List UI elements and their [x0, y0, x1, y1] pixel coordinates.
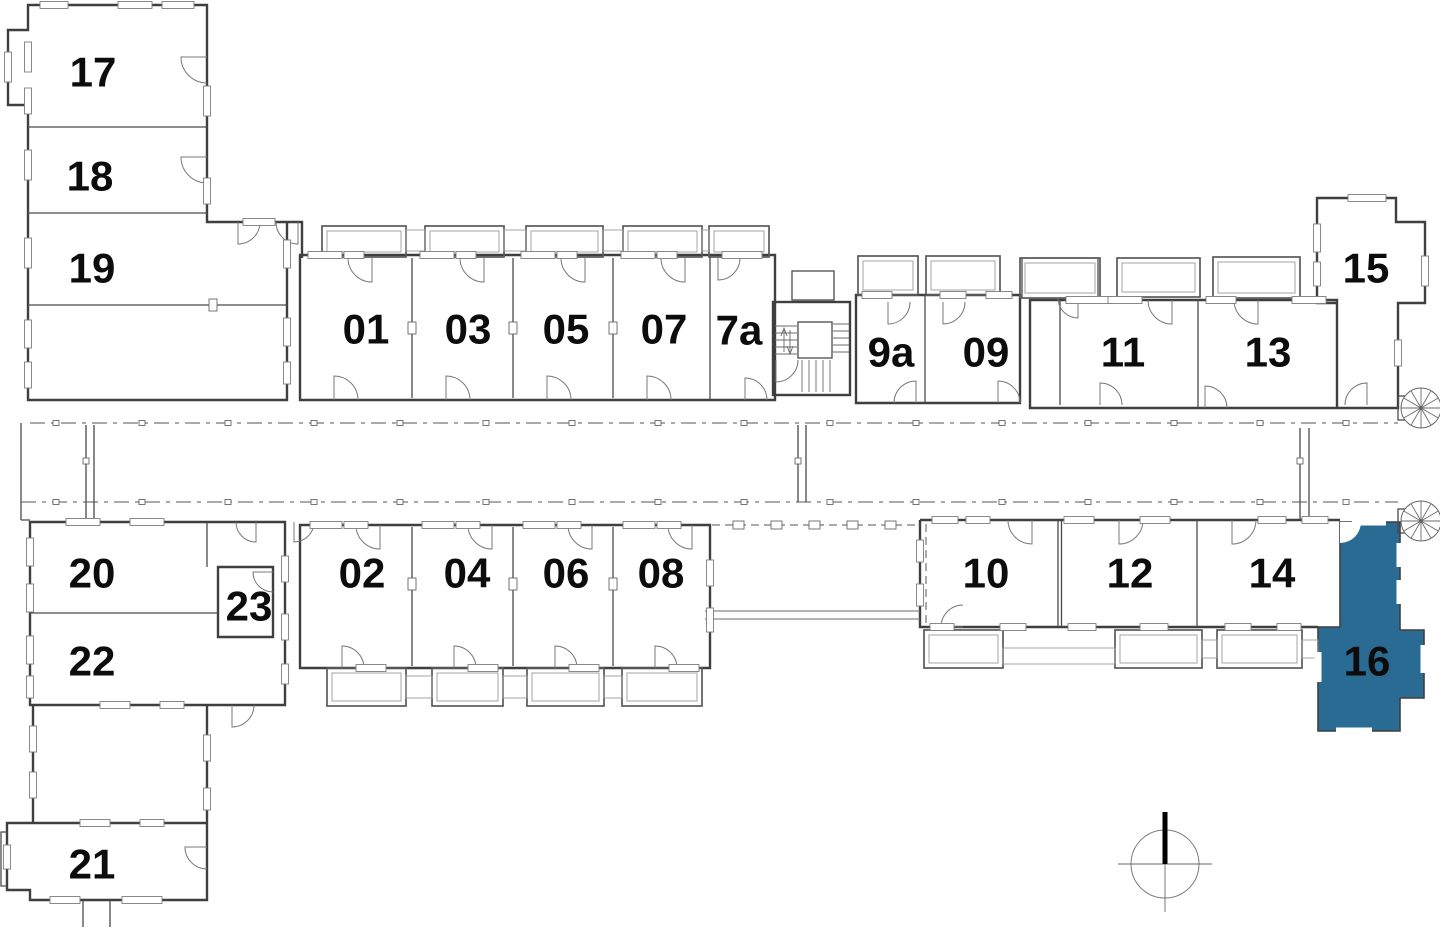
gallery-post [1171, 421, 1177, 426]
balcony [432, 668, 503, 706]
window-icon [25, 320, 32, 348]
gallery-post [1257, 421, 1263, 426]
balcony-inner-rail [531, 231, 598, 252]
balcony-link [604, 676, 622, 698]
unit-08-area[interactable] [613, 525, 710, 668]
gallery-post [53, 421, 59, 426]
compass-north-needle [1163, 812, 1168, 864]
balcony-inner-rail [332, 673, 401, 701]
gallery-post [311, 500, 317, 505]
gallery-post [827, 500, 833, 505]
gallery-post [483, 421, 489, 426]
unit-label-10: 10 [963, 550, 1010, 597]
door-swing-icon [776, 360, 798, 382]
balcony [622, 668, 702, 706]
unit-label-15: 15 [1343, 245, 1390, 292]
unit-22-area[interactable] [30, 613, 207, 705]
window-icon [308, 252, 342, 259]
unit-label-7a: 7a [716, 307, 763, 354]
gallery-post [913, 500, 919, 505]
balcony-inner-rail [532, 673, 599, 701]
unit-label-21: 21 [69, 841, 116, 888]
balcony [327, 668, 406, 706]
unit-20-area[interactable] [30, 522, 207, 613]
gallery-post [827, 421, 833, 426]
balcony [924, 630, 1003, 668]
balcony [858, 256, 918, 295]
gallery-post [569, 421, 575, 426]
staircase-icon [773, 271, 850, 395]
balcony-inner-rail [714, 231, 764, 252]
spiral-stair-center [1419, 406, 1423, 410]
fence-post [771, 521, 782, 529]
gallery-post [999, 421, 1005, 426]
unit-label-14: 14 [1249, 550, 1296, 597]
fence-post [809, 521, 820, 529]
balcony-link [1003, 648, 1115, 664]
gallery-post [655, 500, 661, 505]
balcony-inner-rail [628, 231, 697, 252]
gallery-post [741, 421, 747, 426]
gallery-post [483, 500, 489, 505]
balcony [1115, 630, 1202, 668]
gallery-post [397, 421, 403, 426]
balcony [1217, 630, 1302, 668]
window-icon [118, 2, 152, 9]
window-icon [1422, 256, 1429, 286]
unit-label-09: 09 [963, 329, 1010, 376]
unit-label-01: 01 [343, 306, 390, 353]
gallery-post [139, 500, 145, 505]
balcony [926, 256, 1000, 295]
window-icon [521, 252, 555, 259]
window-icon [657, 252, 677, 259]
floor-plan-canvas: 17 18 19 01 03 05 07 7a 9a 09 11 13 15 0… [0, 0, 1440, 929]
gallery-bridges [86, 425, 1309, 522]
window-icon [284, 318, 291, 346]
gallery-post [569, 500, 575, 505]
gallery-post [225, 500, 231, 505]
doors-layer [181, 57, 1367, 869]
unit-hit-areas [7, 8, 1424, 900]
fence-post [847, 521, 858, 529]
gallery-post [53, 500, 59, 505]
gallery-post [741, 500, 747, 505]
unit-label-22: 22 [69, 638, 116, 685]
unit-label-02: 02 [339, 550, 386, 597]
gallery-post [225, 421, 231, 426]
unit-label-13: 13 [1245, 329, 1292, 376]
balcony-link [503, 676, 527, 698]
bridge-post [83, 458, 89, 464]
balcony [1020, 258, 1100, 298]
stair-arrow-down [787, 330, 793, 354]
gallery-post [999, 500, 1005, 505]
corridor-fence [712, 524, 926, 624]
unit-label-07: 07 [641, 306, 688, 353]
balcony-inner-rail [627, 673, 697, 701]
unit-06-area[interactable] [513, 525, 613, 668]
balcony-inner-rail [863, 261, 913, 290]
bridge-post [795, 458, 801, 464]
balcony-inner-rail [1218, 262, 1295, 293]
corridor-walkway [705, 611, 920, 619]
gallery-post [1343, 421, 1349, 426]
stair-landing [798, 322, 832, 358]
window-icon [284, 362, 291, 384]
unit-18-area[interactable] [28, 127, 207, 213]
balcony-inner-rail [1120, 635, 1197, 663]
stair-core [773, 302, 850, 395]
floor-plan-page: 17 18 19 01 03 05 07 7a 9a 09 11 13 15 0… [0, 0, 1440, 929]
unit-16-area[interactable] [1318, 522, 1424, 731]
balcony-inner-rail [437, 673, 498, 701]
unit-label-11: 11 [1101, 329, 1145, 376]
unit-label-08: 08 [638, 550, 685, 597]
balcony-inner-rail [931, 261, 995, 290]
balcony [1213, 257, 1300, 298]
spiral-stairs-layer [1398, 388, 1440, 541]
unit-label-17: 17 [70, 49, 117, 96]
window-icon [204, 788, 211, 810]
window-icon [282, 614, 289, 640]
door-swing-icon [232, 705, 254, 727]
balcony-link [603, 230, 623, 251]
unit-label-04: 04 [444, 550, 491, 597]
gallery-post [655, 421, 661, 426]
window-icon [557, 252, 577, 259]
balcony [527, 668, 604, 706]
window-icon [40, 2, 68, 9]
outer-walls [7, 5, 1425, 900]
unit-label-03: 03 [445, 306, 492, 353]
unit-label-23: 23 [226, 583, 273, 630]
bridge-post [1297, 458, 1303, 464]
window-icon [5, 52, 12, 82]
unit-label-18: 18 [67, 153, 114, 200]
window-icon [30, 772, 37, 798]
balcony-inner-rail [929, 635, 998, 663]
unit-19-area[interactable] [28, 213, 287, 305]
unit-label-9a: 9a [868, 329, 915, 376]
window-icon [30, 726, 37, 752]
gallery-post [1085, 421, 1091, 426]
gallery-post [311, 421, 317, 426]
window-icon [282, 556, 289, 582]
unit-02-area[interactable] [300, 525, 412, 668]
gallery-post [913, 421, 919, 426]
windows-layer [4, 2, 1429, 904]
window-icon [420, 252, 454, 259]
gallery-post [1343, 500, 1349, 505]
window-icon [621, 252, 655, 259]
window-icon [204, 735, 211, 761]
balcony-inner-rail [1222, 635, 1297, 663]
spiral-staircase-icon [1398, 388, 1440, 428]
gallery-post [397, 500, 403, 505]
unit-label-05: 05 [543, 306, 590, 353]
door-swing-icon [236, 522, 256, 542]
unit-label-19: 19 [69, 245, 116, 292]
balcony-inner-rail [1122, 263, 1195, 292]
gallery-post [1171, 500, 1177, 505]
balcony-link [702, 230, 709, 251]
unit-label-16: 16 [1344, 638, 1391, 685]
unit-label-06: 06 [543, 550, 590, 597]
window-icon [456, 252, 476, 259]
unit-label-20: 20 [69, 550, 116, 597]
balcony [1117, 258, 1200, 297]
fence-post [733, 521, 744, 529]
north-compass-icon [1118, 812, 1212, 912]
balcony-inner-rail [1025, 263, 1095, 293]
unit-17-area[interactable] [28, 8, 207, 127]
balcony-inner-rail [430, 231, 499, 252]
window-icon [25, 362, 32, 388]
unit-15-area[interactable] [1317, 198, 1398, 390]
balcony-inner-rail [327, 231, 401, 252]
unit-label-12: 12 [1107, 550, 1154, 597]
balcony-link [1202, 640, 1217, 658]
gallery-post [139, 421, 145, 426]
balcony-link [406, 230, 425, 251]
gallery-post [1257, 500, 1263, 505]
window-icon [282, 664, 289, 684]
fence-post [885, 521, 896, 529]
unit-labels: 17 18 19 01 03 05 07 7a 9a 09 11 13 15 0… [67, 49, 1391, 888]
balcony-link [406, 676, 432, 698]
gallery-post [1085, 500, 1091, 505]
window-icon [162, 2, 194, 9]
unit-04-area[interactable] [412, 525, 513, 668]
balcony-link [504, 230, 526, 251]
window-icon [344, 252, 364, 259]
stair-vestibule [792, 271, 834, 300]
